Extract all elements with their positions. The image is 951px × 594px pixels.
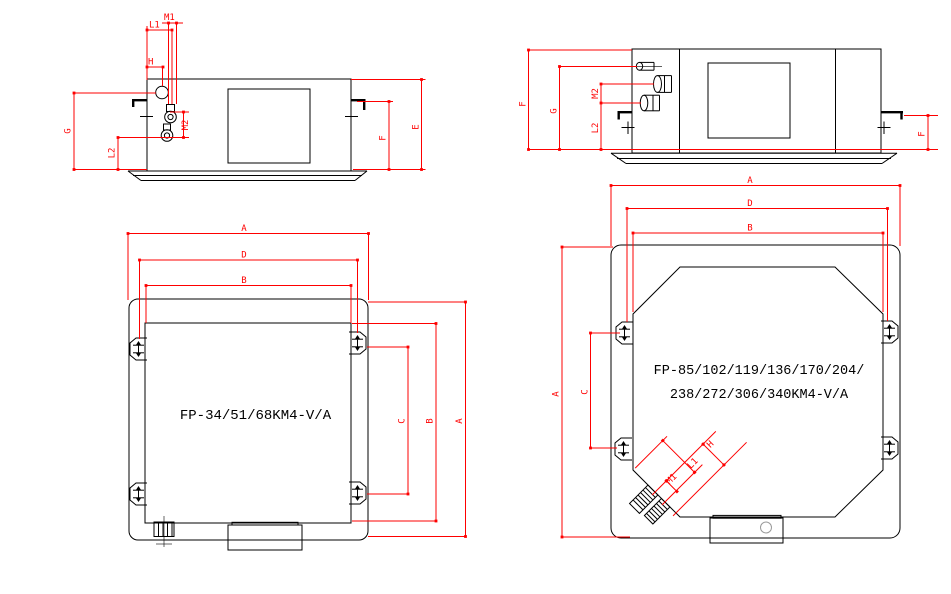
dim-label-b-side: B (426, 418, 436, 423)
dim-label-c-side: C (581, 389, 591, 394)
dim-label-g: G (64, 128, 74, 133)
dim-label-l1: L1 (149, 21, 160, 31)
model-number-text-line1: FP-85/102/119/136/170/204/ (654, 364, 865, 379)
dim-label-a-side: A (455, 418, 465, 424)
fan-coil-dimension-drawing: M1 L1 H M2 G L2 (0, 0, 951, 594)
dim-label-a-side: A (552, 391, 562, 397)
dim-label-f-right: F (918, 131, 928, 136)
dim-label-a-top: A (747, 176, 753, 186)
dim-label-m1: M1 (164, 13, 175, 23)
dim-label-h: H (148, 58, 153, 68)
dim-label-l2: L2 (591, 123, 601, 134)
dim-label-f: F (379, 135, 389, 140)
dim-label-c-side: C (398, 418, 408, 423)
model-number-text-line2: 238/272/306/340KM4-V/A (670, 388, 849, 403)
dim-label-e: E (412, 124, 422, 129)
model-number-text: FP-34/51/68KM4-V/A (180, 408, 332, 424)
dim-label-b-top: B (747, 224, 752, 234)
dim-label-d-top: D (241, 251, 246, 261)
dim-label-b-top: B (241, 276, 246, 286)
dim-label-m2: M2 (181, 120, 191, 131)
technical-drawing-sheet: M1 L1 H M2 G L2 (0, 0, 951, 594)
dim-label-f-left: F (519, 101, 529, 106)
dim-label-m2: M2 (591, 88, 601, 99)
dim-label-l2: L2 (108, 148, 118, 159)
dim-label-a-top: A (241, 224, 247, 234)
dim-label-g: G (550, 108, 560, 113)
dim-label-d-top: D (747, 199, 752, 209)
